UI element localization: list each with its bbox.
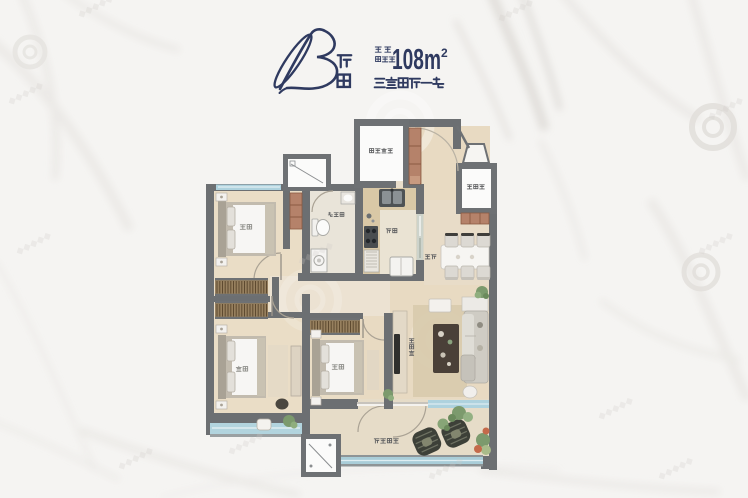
svg-text:2: 2 (441, 46, 448, 60)
svg-text:108m: 108m (392, 44, 441, 76)
